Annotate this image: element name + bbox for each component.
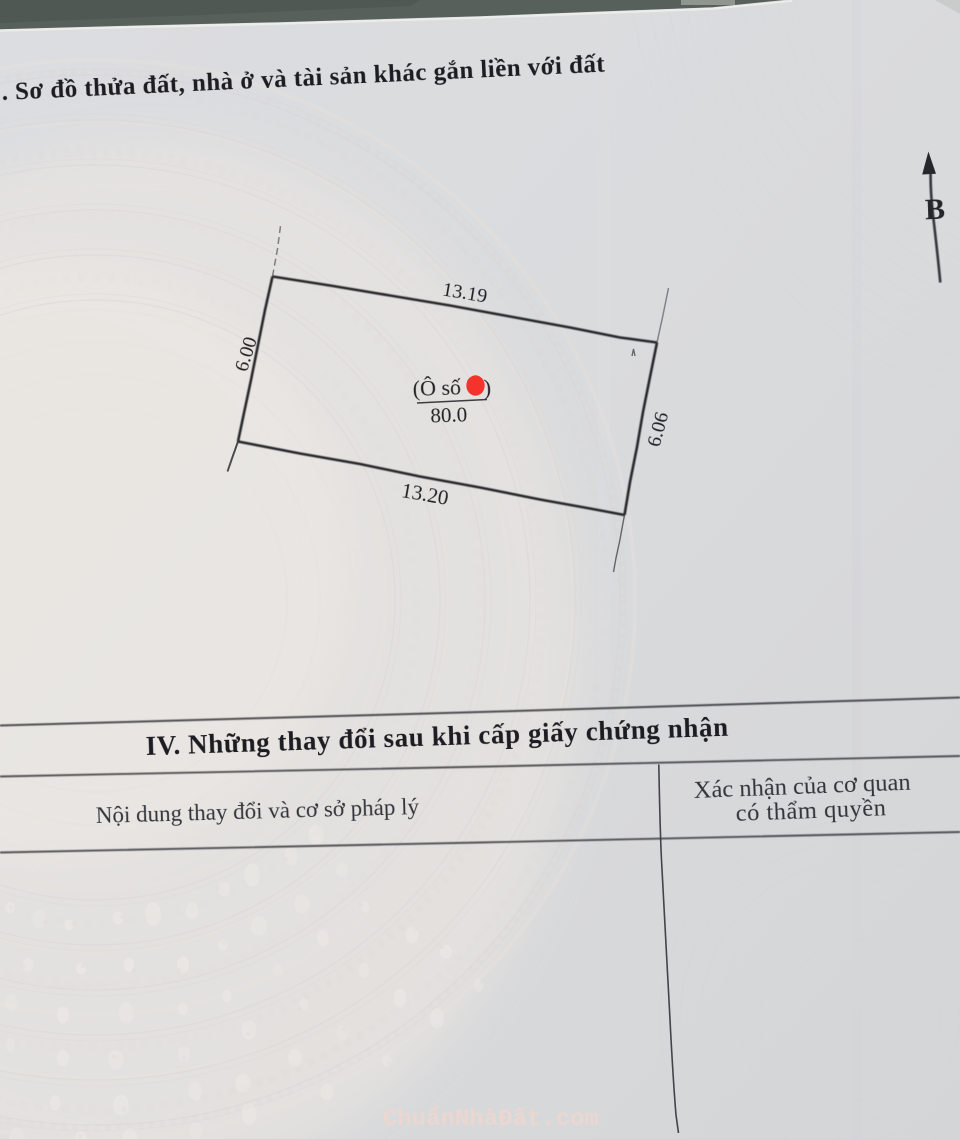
svg-text:80.0: 80.0: [430, 402, 468, 427]
svg-text:(Ô số: (Ô số: [412, 374, 461, 401]
svg-text:B: B: [924, 193, 945, 227]
svg-text:có thẩm quyền: có thẩm quyền: [735, 794, 887, 827]
svg-text:ChuẩnNhàĐất.com: ChuẩnNhàĐất.com: [383, 1105, 599, 1133]
